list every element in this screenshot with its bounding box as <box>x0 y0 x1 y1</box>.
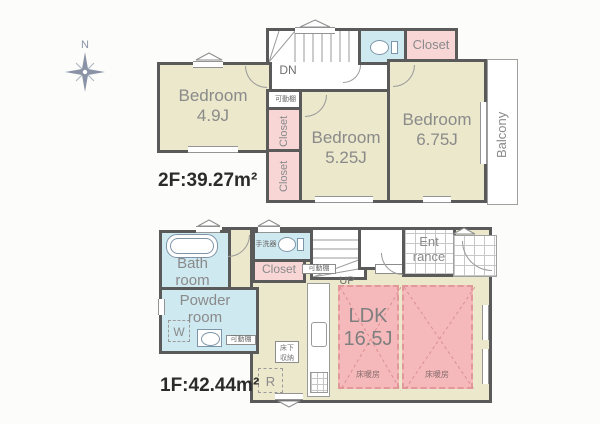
closet-label-2f-lower: Closet <box>278 153 290 199</box>
window <box>275 393 303 400</box>
shelf-label-1f-hall: 可動棚 <box>302 264 336 274</box>
closet-label-1f: Closet <box>254 263 304 277</box>
vent-mark-icon <box>257 219 281 227</box>
window <box>423 196 451 203</box>
shelf-label-1f-powder: 可動棚 <box>226 335 256 345</box>
floor-heating-label-right: 床暖房 <box>417 370 457 379</box>
stove-icon <box>310 372 328 393</box>
vent-mark-icon <box>452 227 476 235</box>
window <box>193 61 223 68</box>
window <box>196 226 220 233</box>
window <box>188 146 238 153</box>
window <box>482 305 489 340</box>
toilet-icon <box>278 237 304 253</box>
refrigerator-box: R <box>258 368 283 393</box>
room-label-ldk: LDK 16.5J <box>338 305 398 351</box>
kitchen-sink-icon <box>311 322 327 347</box>
room-label-bedroom-4-9: Bedroom 4.9J <box>168 86 258 125</box>
shelf-label-2f: 可動棚 <box>268 96 303 104</box>
powder-sink-icon <box>197 329 222 347</box>
closet-label-2f-upper: Closet <box>278 109 290 153</box>
underfloor-storage-box: 床下 収納 <box>275 341 299 363</box>
vent-mark-icon <box>299 19 331 28</box>
stairs-down-label: DN <box>274 64 302 78</box>
vent-mark-icon <box>277 400 301 408</box>
compass-north-label: N <box>81 39 89 51</box>
area-label-1f: 1F:42.44m² <box>160 375 259 397</box>
floor-heating-label-left: 床暖房 <box>348 370 388 379</box>
room-label-entrance: Ent rance <box>406 235 452 265</box>
window <box>295 27 335 34</box>
room-label-bedroom-5-25: Bedroom 5.25J <box>301 128 391 167</box>
room-label-bath: Bath room <box>165 255 220 290</box>
window <box>482 349 489 384</box>
room-label-powder: Powder room <box>165 292 245 327</box>
stairs-up-label: UP <box>334 275 360 288</box>
area-label-2f: 2F:39.27m² <box>158 170 257 192</box>
hand-basin-label: 手洗器 <box>254 241 278 249</box>
window <box>315 196 373 203</box>
balcony-label: Balcony <box>494 95 509 175</box>
window <box>158 299 165 315</box>
toilet-icon <box>370 39 398 56</box>
compass-icon: N <box>60 36 110 98</box>
vent-mark-icon <box>197 219 221 227</box>
floor-plan-canvas: N <box>0 0 600 424</box>
vent-mark-icon <box>195 52 223 61</box>
room-label-bedroom-6-75: Bedroom 6.75J <box>392 110 482 149</box>
closet-label-2f-hall: Closet <box>406 38 456 53</box>
window <box>258 226 280 233</box>
staircase-down-2f <box>269 31 361 62</box>
